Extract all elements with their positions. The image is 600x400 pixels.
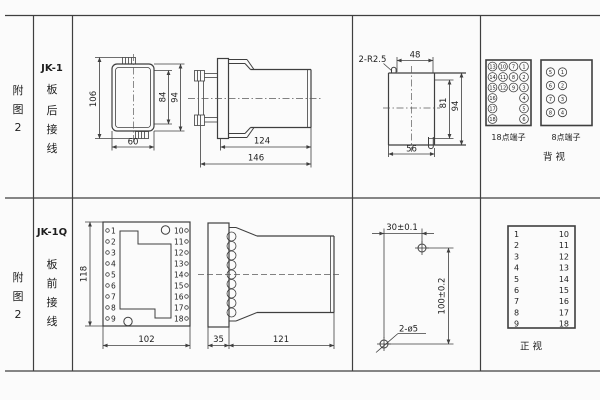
top-terminal-screw bbox=[195, 71, 218, 82]
terminal-number: 6 bbox=[522, 117, 525, 123]
front-terminal-table: 1 2 3 4 5 6 7 8 9 10 11 12 13 14 15 16 1… bbox=[508, 226, 575, 353]
wiring-char: 接 bbox=[47, 123, 58, 136]
terminal-circles-8: 5 6 7 8 1 2 3 4 bbox=[546, 68, 566, 117]
dim-height: 106 bbox=[89, 91, 99, 107]
terminal-number: 10 bbox=[500, 64, 506, 70]
terminal-number: 4 bbox=[514, 264, 519, 273]
dim-cutout-top: 48 bbox=[410, 51, 421, 61]
terminal-number: 5 bbox=[549, 70, 552, 76]
terminal-label: 3 bbox=[111, 248, 116, 257]
case-side-view: 124 146 bbox=[188, 59, 322, 168]
fig-char: 附 bbox=[13, 83, 24, 97]
mounting-hole bbox=[124, 317, 132, 325]
row2-model-label: JK-1Q 板 前 接 线 bbox=[36, 227, 67, 328]
terminal-number: 8 bbox=[549, 110, 552, 116]
case-inner-outline bbox=[116, 68, 151, 128]
dim-cutout-inner: 81 bbox=[439, 98, 449, 109]
terminal-number: 5 bbox=[514, 275, 519, 284]
wiring-char: 接 bbox=[47, 296, 58, 309]
terminal-number: 14 bbox=[559, 275, 569, 284]
radius-note: 2-R2.5 bbox=[359, 55, 387, 65]
front-plate-view: 1 2 3 4 5 6 7 8 9 10 11 12 13 14 15 16 1… bbox=[80, 222, 191, 349]
terminal-label: 13 bbox=[174, 259, 184, 268]
row2-figure-label: 附 图 2 bbox=[13, 270, 24, 321]
extension-lines bbox=[95, 58, 185, 151]
terminal-number: 1 bbox=[514, 230, 519, 239]
terminal-label: 4 bbox=[111, 259, 116, 268]
model-name: JK-1Q bbox=[36, 227, 67, 238]
dim-hole-spacing-v: 100±0.2 bbox=[438, 278, 448, 315]
terminal-number: 2 bbox=[561, 83, 564, 89]
table-right-column: 10 11 12 13 14 15 16 17 18 bbox=[559, 230, 569, 329]
terminal-number: 17 bbox=[559, 308, 569, 317]
terminal-number: 3 bbox=[522, 85, 525, 91]
terminal-number: 6 bbox=[514, 286, 519, 295]
terminal-number: 3 bbox=[561, 97, 564, 103]
terminal-label: 9 bbox=[111, 314, 116, 323]
terminal-number: 13 bbox=[559, 264, 569, 273]
panel-cutout-view: 2-R2.5 48 81 94 56 bbox=[359, 51, 467, 158]
terminal-label: 8 bbox=[111, 303, 116, 312]
terminal-circles-18: 13 10 7 1 14 11 8 2 15 12 9 3 16 4 17 5 … bbox=[488, 62, 528, 123]
wiring-char: 前 bbox=[47, 276, 58, 290]
wiring-char: 板 bbox=[47, 257, 58, 271]
fig-char: 图 bbox=[13, 290, 24, 303]
bottom-clip-side bbox=[229, 128, 255, 138]
terminal-number: 7 bbox=[514, 297, 519, 306]
terminal-number: 2 bbox=[514, 241, 519, 250]
table-grid bbox=[5, 16, 600, 372]
dim-hole-spacing-h: 30±0.1 bbox=[386, 223, 417, 233]
terminal-label: 10 bbox=[174, 226, 184, 235]
table-left-column: 1 2 3 4 5 6 7 8 9 bbox=[514, 230, 519, 329]
terminal-number: 16 bbox=[489, 96, 495, 102]
terminal-label: 17 bbox=[174, 303, 184, 312]
terminal-label: 2 bbox=[111, 237, 116, 246]
relay-outline-drawing-sheet: 附 图 2 JK-1 板 后 接 线 bbox=[0, 0, 600, 400]
wiring-char: 板 bbox=[47, 82, 58, 96]
extension-lines bbox=[208, 313, 334, 350]
rear-view-label: 背 视 bbox=[543, 151, 566, 163]
terminal-number: 17 bbox=[489, 106, 495, 112]
terminal-block-18pt: 13 10 7 1 14 11 8 2 15 12 9 3 16 4 17 5 … bbox=[486, 60, 531, 142]
top-clip-side bbox=[229, 60, 255, 70]
drill-pattern-view: 30±0.1 100±0.2 2-ø5 bbox=[372, 223, 454, 353]
terminal-number: 4 bbox=[522, 96, 525, 102]
row1-model-label: JK-1 板 后 接 线 bbox=[40, 63, 63, 155]
terminal-number: 18 bbox=[559, 320, 569, 329]
terminal-number: 18 bbox=[489, 117, 495, 123]
terminal-number: 11 bbox=[500, 75, 506, 81]
terminal-label: 15 bbox=[174, 281, 184, 290]
terminal-number: 14 bbox=[489, 75, 495, 81]
terminal-number: 8 bbox=[512, 75, 515, 81]
dim-cutout-bottom: 56 bbox=[406, 145, 417, 155]
terminal-number: 7 bbox=[549, 97, 552, 103]
fig-char: 图 bbox=[13, 103, 24, 116]
wiring-char: 后 bbox=[47, 104, 58, 117]
terminal-number: 9 bbox=[512, 85, 515, 91]
terminal-label: 14 bbox=[174, 270, 184, 279]
dim-cutout-outer: 94 bbox=[451, 101, 461, 112]
terminal-number: 1 bbox=[561, 70, 564, 76]
terminal-block-8pt: 5 6 7 8 1 2 3 4 8点端子 bbox=[541, 60, 592, 142]
front-view-label: 正 视 bbox=[520, 341, 543, 353]
terminal-number: 9 bbox=[514, 320, 519, 329]
terminal-number: 13 bbox=[489, 64, 495, 70]
row1-figure-label: 附 图 2 bbox=[13, 83, 24, 134]
terminal-label: 18 bbox=[174, 314, 184, 323]
plate-side bbox=[208, 223, 229, 327]
model-name: JK-1 bbox=[40, 63, 63, 74]
terminal-number: 5 bbox=[522, 106, 525, 112]
wiring-char: 线 bbox=[47, 141, 58, 155]
terminal-number: 12 bbox=[500, 85, 506, 91]
terminal-number: 3 bbox=[514, 252, 519, 261]
fig-char: 附 bbox=[13, 270, 24, 284]
dim-outer-height: 94 bbox=[171, 92, 181, 103]
dim-plate-depth: 35 bbox=[213, 335, 224, 345]
terminal-label: 6 bbox=[111, 281, 116, 290]
terminal-number: 8 bbox=[514, 308, 519, 317]
terminal-label: 16 bbox=[174, 292, 184, 301]
terminal-box-8-label: 8点端子 bbox=[551, 132, 580, 142]
terminal-label: 11 bbox=[174, 237, 184, 246]
hole-diameter-note: 2-ø5 bbox=[399, 325, 418, 335]
terminal-number: 15 bbox=[489, 85, 495, 91]
body-cutout-outline bbox=[120, 231, 171, 318]
dim-plate-width: 102 bbox=[138, 335, 154, 345]
terminal-label: 12 bbox=[174, 248, 184, 257]
front-plate-side-view: 35 121 bbox=[198, 223, 341, 349]
dim-plate-height: 118 bbox=[80, 266, 90, 282]
dim-total-depth: 146 bbox=[248, 154, 264, 164]
right-terminal-column: 10 11 12 13 14 15 16 17 18 bbox=[174, 226, 188, 323]
hole-note-leader bbox=[376, 334, 426, 353]
wiring-char: 线 bbox=[47, 314, 58, 328]
case-rear-view: 106 60 84 94 bbox=[89, 54, 185, 151]
dim-body-depth: 124 bbox=[254, 137, 270, 147]
terminal-box-18-label: 18点端子 bbox=[491, 132, 525, 142]
terminal-number: 16 bbox=[559, 297, 569, 306]
terminal-label: 5 bbox=[111, 270, 116, 279]
terminal-label: 1 bbox=[111, 226, 116, 235]
terminal-number: 1 bbox=[522, 64, 525, 70]
terminal-number: 10 bbox=[559, 230, 569, 239]
terminal-number: 15 bbox=[559, 286, 569, 295]
case-outline bbox=[112, 64, 154, 131]
key-notch-top bbox=[392, 67, 397, 73]
fig-char: 2 bbox=[15, 308, 22, 321]
mounting-hole bbox=[161, 226, 169, 234]
drawing-canvas: 附 图 2 JK-1 板 后 接 线 bbox=[0, 0, 600, 400]
bottom-terminal-screw bbox=[195, 115, 218, 126]
dim-inner-height: 84 bbox=[159, 92, 169, 103]
terminal-number: 12 bbox=[559, 252, 569, 261]
left-terminal-column: 1 2 3 4 5 6 7 8 9 bbox=[106, 226, 116, 323]
dim-body-depth: 121 bbox=[273, 335, 289, 345]
terminal-number: 7 bbox=[512, 64, 515, 70]
terminal-number: 4 bbox=[561, 110, 564, 116]
terminal-number: 2 bbox=[522, 75, 525, 81]
dim-width: 60 bbox=[128, 138, 139, 148]
terminal-number: 11 bbox=[559, 241, 569, 250]
fig-char: 2 bbox=[15, 121, 22, 134]
terminal-label: 7 bbox=[111, 292, 116, 301]
terminal-number: 6 bbox=[549, 83, 552, 89]
